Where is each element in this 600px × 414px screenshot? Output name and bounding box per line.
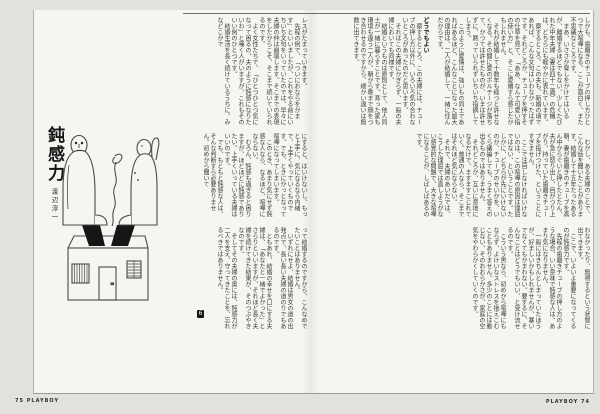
left-page-band-2: にすると、はいけないし、もっと上手に、気になるなら内緒で、上手くやっていくもので… [183, 133, 307, 219]
left-page-band-1: レスがたまっていきます。 先程の例で、「ついにおならをかます」といいましたが、こ… [183, 17, 307, 125]
footer-right-brand: PLAYBOY [546, 399, 578, 405]
house-front [68, 248, 148, 300]
smoke-squiggle [112, 154, 122, 226]
left-figure [63, 136, 107, 226]
right-figure [119, 138, 159, 225]
footer-left: 75 PLAYBOY [15, 398, 59, 404]
right-figure-body [131, 154, 157, 225]
section-subhead: どうでもよい [422, 17, 429, 53]
right-figure-thigh [119, 215, 131, 225]
house-window-right [127, 261, 141, 278]
footer-right-page-number: 74 [581, 399, 590, 405]
right-page-band-2: むかし、ある夫婦のことで、こんな話を聞いたことがあります。結婚して十五年たったあ… [318, 133, 590, 219]
house-open-top [68, 236, 148, 248]
left-figure-thigh [95, 215, 107, 225]
right-band1-text-post: 察するところ、この夫婦には、チューブの押し方以外に、いろいろ気の合わないところが… [352, 17, 422, 125]
couple-on-house-illustration [55, 133, 187, 333]
house-drawing [68, 236, 148, 300]
article-end-mark: 6 [197, 310, 204, 318]
door-handle [111, 283, 114, 285]
footer-left-page-number: 75 [15, 398, 24, 404]
house-window-left [72, 264, 89, 283]
footer-left-brand: PLAYBOY [27, 398, 59, 404]
top-rule [183, 13, 590, 14]
magazine-spread: 鈍感力 渡辺淳一 [0, 0, 600, 414]
footer-right: PLAYBOY 74 [510, 399, 590, 405]
right-band1-text-pre: しかも、歯磨きのチューブの押し方ひとつで大喧嘩になる。ここが面白く、また不思議な… [436, 17, 590, 125]
right-page-band-1: しかも、歯磨きのチューブの押し方ひとつで大喧嘩になる。ここが面白く、また不思議な… [318, 17, 590, 125]
right-figure-raised-arm [152, 138, 159, 160]
right-figure-eye [141, 145, 142, 146]
right-page-band-3: わなかったり、無視するという状態に出てきます。 ここで、いよいよ重要になってくる… [318, 227, 590, 331]
